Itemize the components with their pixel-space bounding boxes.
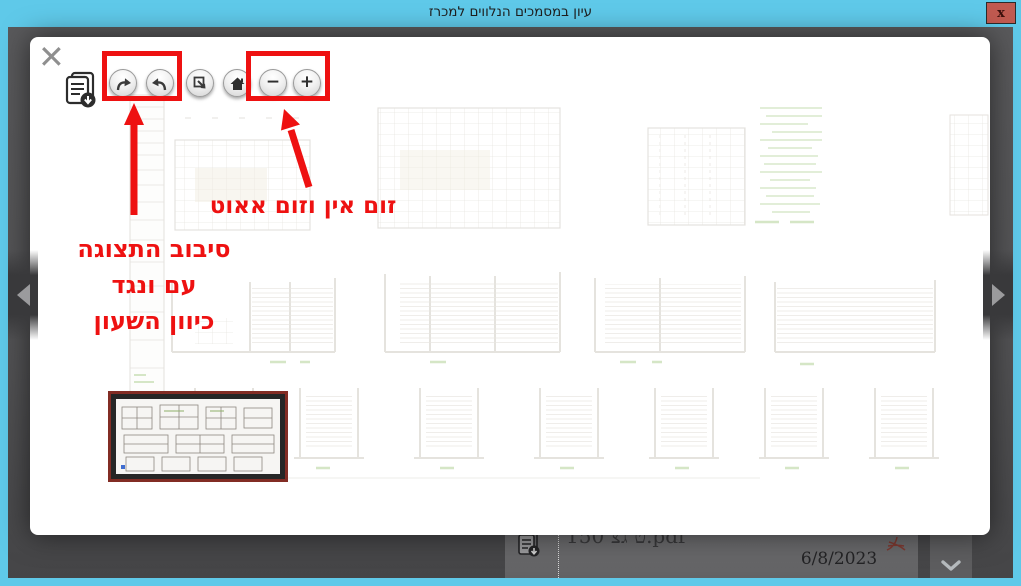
app-window: עיון במסמכים הנלווים למכרז x 150 ט גצ.pd…: [0, 0, 1021, 586]
download-document-button[interactable]: [60, 70, 102, 114]
document-viewer-modal: ✕: [30, 37, 990, 535]
window-title: עיון במסמכים הנלווים למכרז: [0, 4, 1021, 20]
chevron-down-icon: [940, 560, 962, 572]
rotate-buttons-highlight-box: [102, 51, 182, 101]
zoom-annotation-label: זום אין וזום אאוט: [180, 193, 426, 219]
resize-icon: [192, 75, 208, 91]
window-titlebar: עיון במסמכים הנלווים למכרז x: [0, 0, 1021, 27]
page-thumbnail-image: [116, 399, 280, 474]
window-close-button[interactable]: x: [986, 2, 1016, 24]
fit-to-screen-button[interactable]: [186, 69, 214, 97]
document-download-icon: [60, 70, 102, 110]
pdf-file-icon[interactable]: [884, 535, 908, 557]
rotate-annotation-line3: כיוון השעון: [52, 303, 256, 339]
zoom-buttons-highlight-box: [246, 51, 330, 101]
rotate-annotation-line1: סיבוב התצוגה: [52, 231, 256, 267]
document-date: 6/8/2023: [796, 549, 882, 569]
chevron-right-icon: [992, 284, 1005, 306]
next-page-button[interactable]: [983, 250, 1013, 340]
previous-page-button[interactable]: [8, 250, 38, 340]
rotate-annotation-label: סיבוב התצוגה עם ונגד כיוון השעון: [52, 231, 256, 339]
chevron-left-icon: [17, 284, 30, 306]
close-x-icon: x: [997, 6, 1005, 21]
home-icon: [229, 76, 246, 91]
page-thumbnail[interactable]: [108, 391, 288, 482]
rotate-annotation-line2: עם ונגד: [52, 267, 256, 303]
